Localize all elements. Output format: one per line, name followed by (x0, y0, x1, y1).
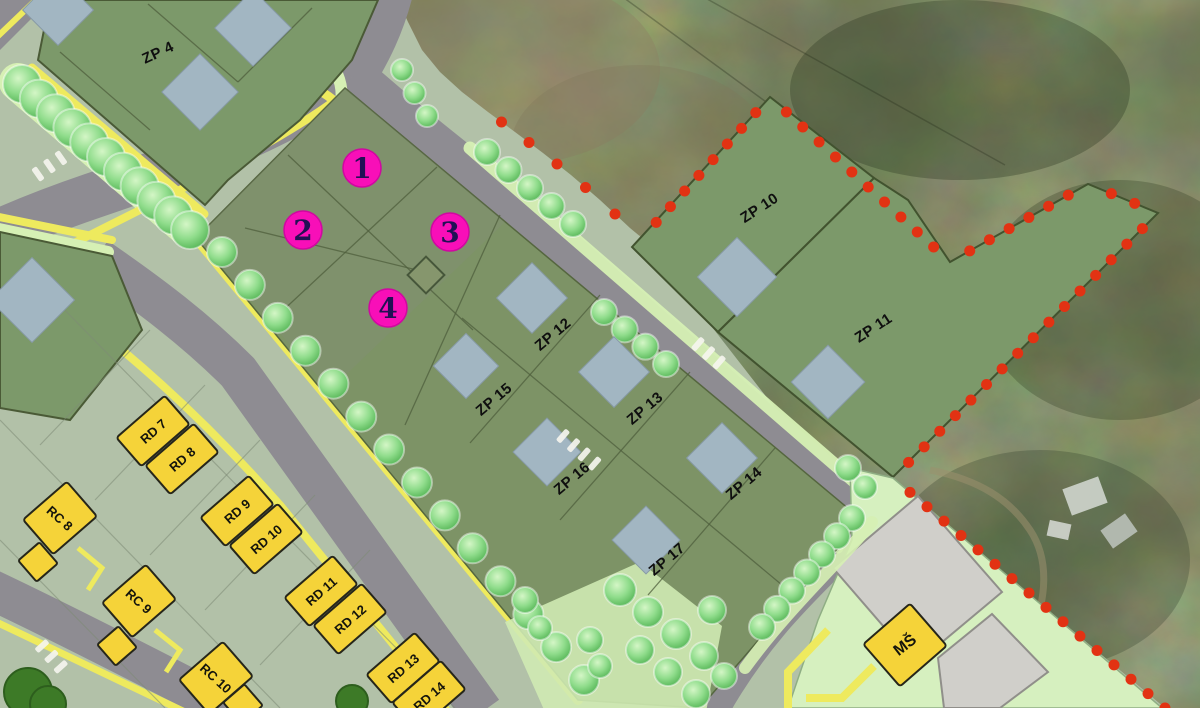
tree-icon (374, 435, 404, 465)
plot-marker-number: 4 (378, 292, 397, 325)
boundary-dot (524, 137, 535, 148)
plot-marker-number: 3 (440, 216, 459, 249)
tree-icon (632, 334, 658, 360)
site-plan-svg: RD 7RD 8RD 9RD 10RD 11RD 12RD 13RD 14RC … (0, 0, 1200, 708)
boundary-dot (939, 516, 950, 527)
tree-icon (633, 597, 663, 627)
site-plan-map: RD 7RD 8RD 9RD 10RD 11RD 12RD 13RD 14RC … (0, 0, 1200, 708)
tree-icon (749, 614, 775, 640)
tree-icon (653, 351, 679, 377)
tree-icon (416, 105, 438, 127)
tree-icon (318, 369, 348, 399)
boundary-dot (912, 227, 923, 238)
tree-icon (474, 139, 500, 165)
tree-icon (626, 636, 654, 664)
tree-icon (430, 500, 460, 530)
boundary-dot (830, 152, 841, 163)
tree-icon (661, 619, 691, 649)
boundary-dot (781, 107, 792, 118)
boundary-dot (736, 123, 747, 134)
boundary-dot (679, 186, 690, 197)
tree-icon (391, 59, 413, 81)
boundary-dot (797, 122, 808, 133)
boundary-dot (1059, 301, 1070, 312)
boundary-dot (997, 363, 1008, 374)
boundary-dot (1106, 254, 1117, 265)
tree-icon (588, 654, 612, 678)
boundary-dot (922, 501, 933, 512)
boundary-dot (956, 530, 967, 541)
boundary-dot (1106, 188, 1117, 199)
boundary-dot (708, 154, 719, 165)
boundary-dot (964, 245, 975, 256)
tree-icon (512, 587, 538, 613)
boundary-dot (1041, 602, 1052, 613)
boundary-dot (1121, 239, 1132, 250)
boundary-dot (552, 159, 563, 170)
tree-icon (263, 303, 293, 333)
boundary-dot (905, 487, 916, 498)
boundary-dot (722, 139, 733, 150)
tree-icon (291, 336, 321, 366)
boundary-dot (1129, 198, 1140, 209)
boundary-dot (1075, 631, 1086, 642)
tree-icon (404, 82, 426, 104)
boundary-dot (814, 137, 825, 148)
boundary-dot (1058, 616, 1069, 627)
boundary-dot (846, 167, 857, 178)
tree-icon (346, 402, 376, 432)
tree-icon (690, 642, 718, 670)
boundary-dot (984, 234, 995, 245)
tree-icon (207, 237, 237, 267)
boundary-dot (1143, 688, 1154, 699)
boundary-dot (928, 242, 939, 253)
boundary-dot (1012, 348, 1023, 359)
tree-icon (654, 658, 682, 686)
tree-icon (604, 574, 636, 606)
bush-icon (336, 685, 368, 708)
boundary-dot (1007, 573, 1018, 584)
boundary-dot (1043, 201, 1054, 212)
boundary-dot (1126, 674, 1137, 685)
boundary-dot (750, 107, 761, 118)
tree-icon (402, 467, 432, 497)
boundary-dot (895, 212, 906, 223)
boundary-dot (610, 209, 621, 220)
boundary-dot (1109, 659, 1120, 670)
tree-icon (577, 627, 603, 653)
boundary-dot (1023, 212, 1034, 223)
boundary-dot (903, 457, 914, 468)
boundary-dot (1092, 645, 1103, 656)
boundary-dot (665, 201, 676, 212)
boundary-dot (863, 182, 874, 193)
tree-icon (458, 533, 488, 563)
tree-icon (698, 596, 726, 624)
tree-icon (528, 616, 552, 640)
boundary-dot (973, 544, 984, 555)
boundary-dot (1090, 270, 1101, 281)
tree-icon (539, 193, 565, 219)
tree-icon (485, 566, 515, 596)
tree-icon (560, 211, 586, 237)
boundary-dot (990, 559, 1001, 570)
tree-icon (517, 175, 543, 201)
tree-icon (171, 211, 209, 249)
tree-icon (682, 680, 710, 708)
boundary-dot (496, 117, 507, 128)
boundary-dot (1028, 332, 1039, 343)
boundary-dot (1004, 223, 1015, 234)
boundary-dot (1075, 285, 1086, 296)
tree-icon (591, 299, 617, 325)
boundary-dot (580, 182, 591, 193)
boundary-dot (879, 197, 890, 208)
boundary-dot (965, 395, 976, 406)
boundary-dot (1063, 190, 1074, 201)
tree-icon (711, 663, 737, 689)
boundary-dot (934, 426, 945, 437)
tree-icon (496, 157, 522, 183)
boundary-dot (1137, 223, 1148, 234)
boundary-dot (950, 410, 961, 421)
plot-marker-number: 1 (352, 152, 371, 185)
boundary-dot (693, 170, 704, 181)
boundary-dot (1043, 317, 1054, 328)
boundary-dot (919, 441, 930, 452)
tree-icon (853, 475, 877, 499)
plot-marker-number: 2 (293, 214, 312, 247)
tree-icon (235, 270, 265, 300)
boundary-dot (1024, 588, 1035, 599)
boundary-dot (981, 379, 992, 390)
boundary-dot (651, 217, 662, 228)
